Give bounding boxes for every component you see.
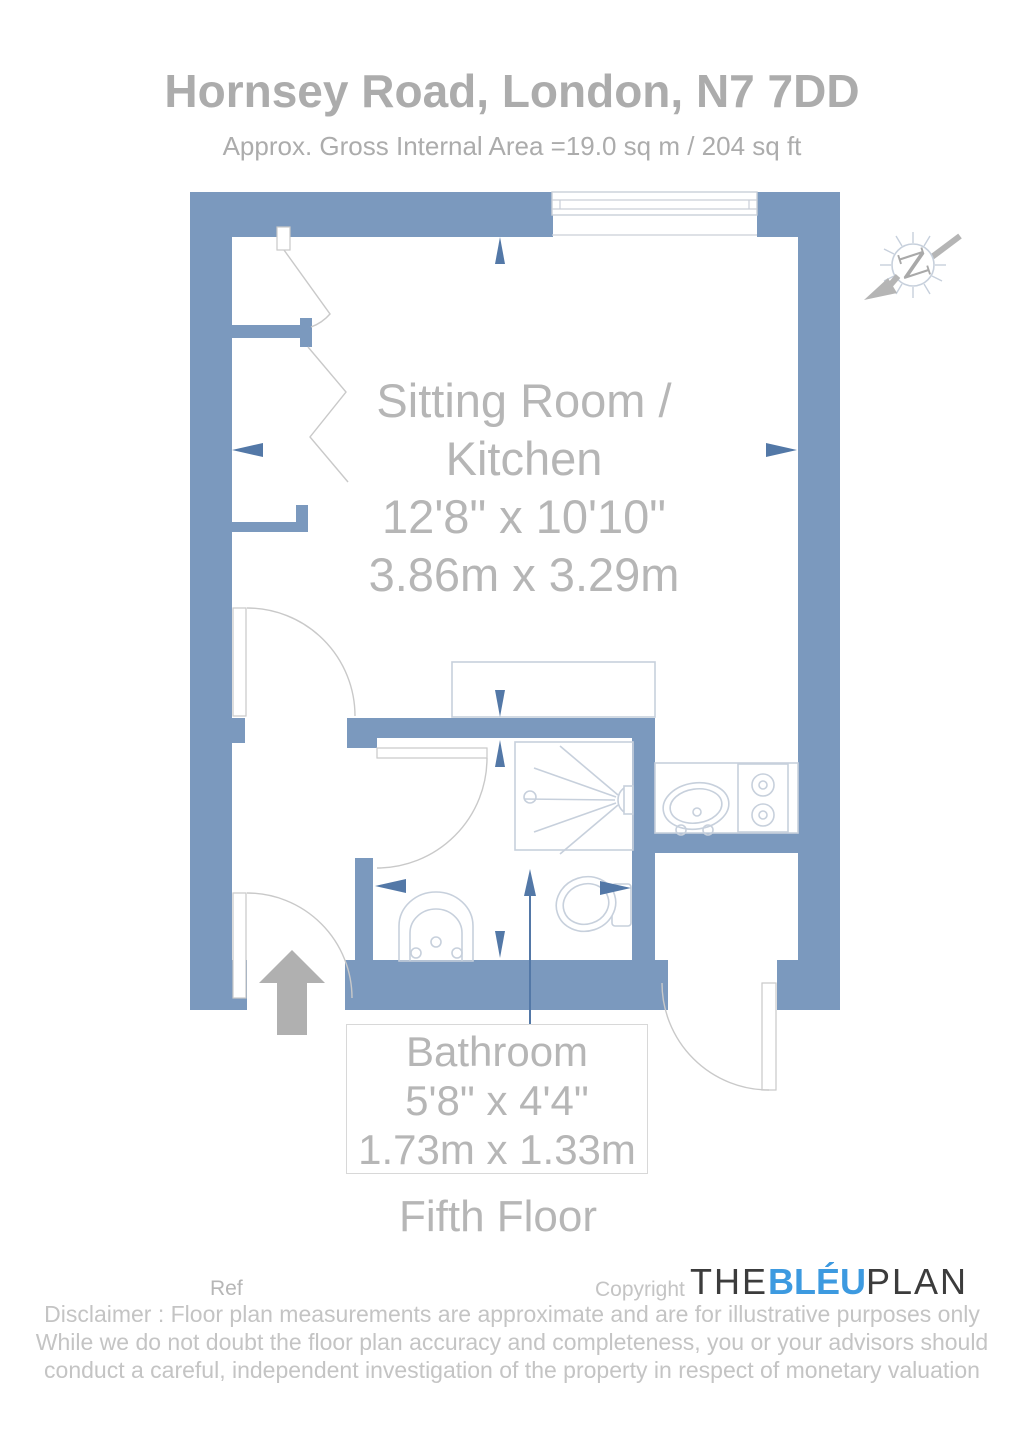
bathroom-leader-arrowhead xyxy=(524,869,536,896)
shower xyxy=(515,742,633,854)
toilet xyxy=(549,869,631,939)
wall-bathroom-door-jamb xyxy=(347,738,377,748)
wall-bathroom-left xyxy=(355,858,373,960)
wall-bathroom-top xyxy=(347,718,655,738)
bathroom-label-box: Bathroom 5'8" x 4'4" 1.73m x 1.33m xyxy=(346,1024,648,1174)
bathroom-door-leaf xyxy=(377,748,487,758)
disclaimer-line-2: While we do not doubt the floor plan acc… xyxy=(0,1329,1024,1356)
window xyxy=(552,192,757,235)
wall-bottom-middle xyxy=(345,960,668,1010)
toilet-bowl xyxy=(549,869,623,939)
entrance-arrow-icon xyxy=(259,950,325,1035)
shower-spray-line xyxy=(524,799,615,800)
bathroom-size-imperial: 5'8" x 4'4" xyxy=(347,1076,647,1125)
sitting-room-label: Sitting Room / Kitchen 12'8" x 10'10" 3.… xyxy=(224,372,824,604)
ref-label: Ref xyxy=(210,1277,243,1301)
rear-door-arc xyxy=(662,983,769,1090)
bathroom-name: Bathroom xyxy=(347,1027,647,1076)
floorplan-page: N Hornsey Road, London, N7 7DD Approx. G… xyxy=(0,0,1024,1449)
wall-closet-stub-1 xyxy=(232,325,302,338)
wall-hall-stub xyxy=(232,718,245,743)
dim-arrow-up xyxy=(495,237,505,264)
sink-tap xyxy=(452,948,462,958)
hall-door-arc xyxy=(247,608,355,716)
hall-door-leaf xyxy=(233,608,246,716)
brand-bleu: BLÉU xyxy=(768,1261,866,1302)
dim-arrow-bath-left xyxy=(375,879,406,893)
hob-burner-center xyxy=(759,781,767,789)
brand-plan: PLAN xyxy=(866,1261,968,1302)
sitting-room-name-line1: Sitting Room / xyxy=(224,372,824,430)
dim-arrow-down xyxy=(495,690,505,717)
north-arrow-icon: N xyxy=(864,232,960,300)
shower-drain xyxy=(524,791,536,803)
copyright-label: Copyright xyxy=(595,1278,685,1302)
sink-drain xyxy=(431,937,441,947)
page-title: Hornsey Road, London, N7 7DD xyxy=(0,64,1024,118)
closet-door-1 xyxy=(284,250,330,327)
hob-burner xyxy=(752,774,774,796)
floor-label: Fifth Floor xyxy=(203,1192,793,1242)
area-subtitle: Approx. Gross Internal Area =19.0 sq m /… xyxy=(0,131,1024,162)
kitchen-counter xyxy=(655,763,798,835)
wall-bathroom-right xyxy=(632,738,655,960)
shower-head-mount xyxy=(624,786,633,814)
fixtures xyxy=(399,662,798,961)
bathroom-sink xyxy=(399,892,473,961)
brand-logo: THEBLÉUPLAN xyxy=(690,1261,968,1303)
sitting-room-name-line2: Kitchen xyxy=(224,430,824,488)
sitting-room-size-imperial: 12'8" x 10'10" xyxy=(224,488,824,546)
closet-door-jamb xyxy=(277,227,290,250)
worktop-unit xyxy=(452,662,655,717)
wall-top-left xyxy=(190,192,553,237)
hob-burner xyxy=(752,804,774,826)
kitchen-sink-basin xyxy=(668,786,724,827)
counter-outline xyxy=(655,763,798,833)
dim-arrow-bath-down xyxy=(495,931,505,958)
kitchen-sink-drain xyxy=(693,808,701,816)
window-frame xyxy=(552,192,757,215)
disclaimer-line-1: Disclaimer : Floor plan measurements are… xyxy=(0,1301,1024,1328)
sink-tap xyxy=(411,948,421,958)
dim-arrow-bath-up xyxy=(495,740,505,767)
wall-under-counter xyxy=(655,833,798,853)
brand-the: THE xyxy=(690,1261,768,1302)
wall-bottom-right xyxy=(777,960,840,1010)
sitting-room-size-metric: 3.86m x 3.29m xyxy=(224,546,824,604)
bathroom-size-metric: 1.73m x 1.33m xyxy=(347,1125,647,1174)
sink-basin xyxy=(410,909,462,961)
hob-burner-center xyxy=(759,811,767,819)
bathroom-door-arc xyxy=(377,758,487,868)
dimension-arrows xyxy=(232,237,797,1024)
disclaimer-line-3: conduct a careful, independent investiga… xyxy=(0,1357,1024,1384)
entrance-door-leaf xyxy=(233,893,246,998)
rear-door-leaf xyxy=(762,983,776,1090)
shower-head xyxy=(618,788,624,812)
wall-closet-tab-1 xyxy=(300,318,312,347)
